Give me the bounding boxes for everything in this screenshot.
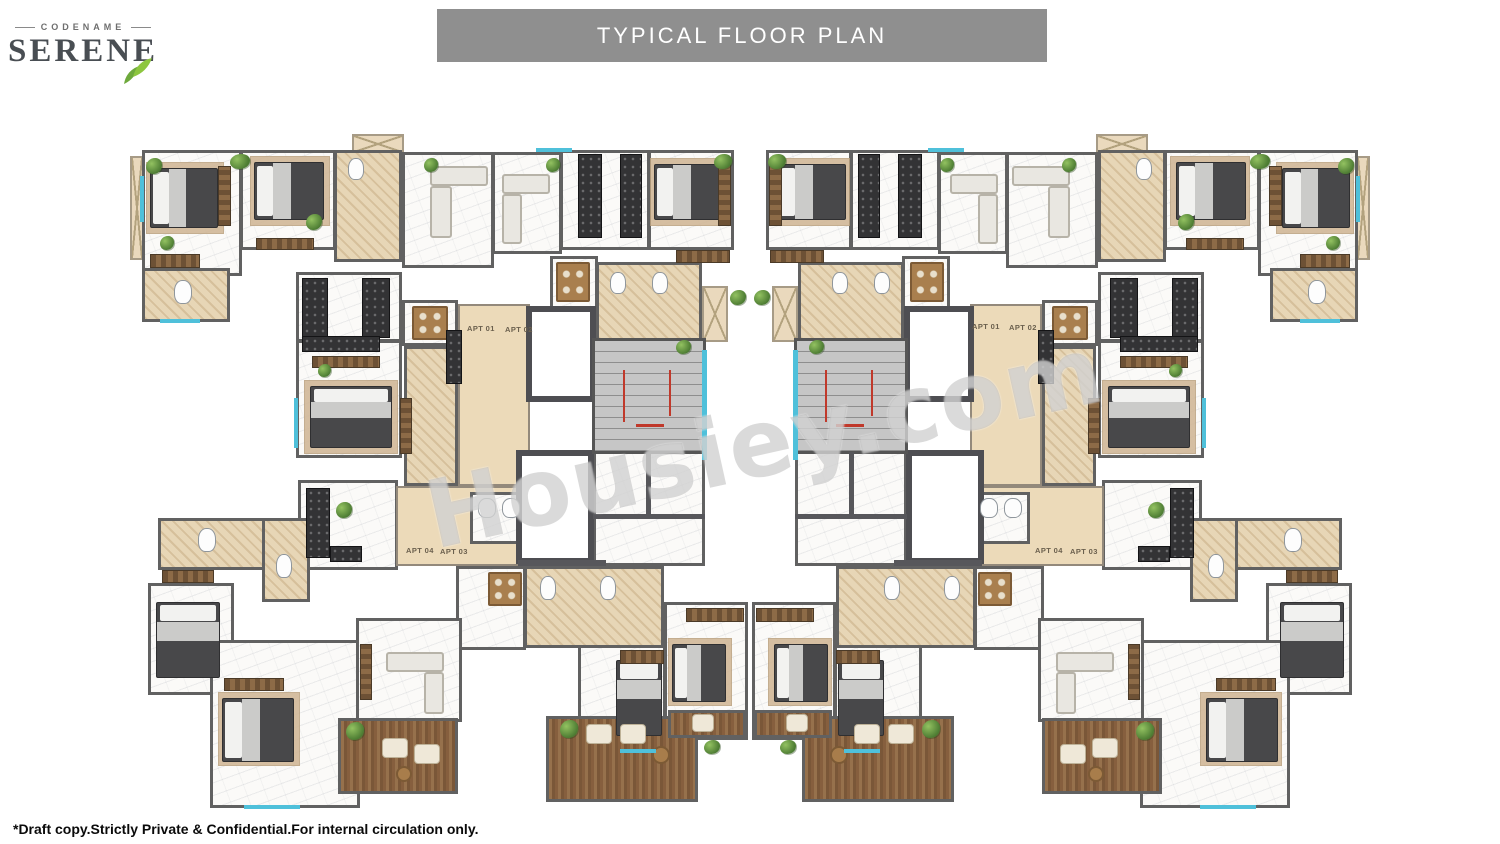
- window-strip: [620, 749, 656, 753]
- stair-rail: [636, 424, 664, 427]
- wardrobe: [836, 650, 880, 664]
- apartment-label: APT 02: [1009, 323, 1037, 332]
- window-strip: [793, 350, 798, 460]
- bath-fixture: [1308, 280, 1326, 304]
- wardrobe: [360, 644, 372, 700]
- elevator-shaft: [516, 450, 594, 564]
- staircase: [592, 338, 706, 454]
- bath-fixture: [874, 272, 890, 294]
- staircase: [794, 338, 908, 454]
- elevator-shaft: [526, 306, 596, 402]
- bath-fixture: [652, 272, 668, 294]
- bath-fixture: [1136, 158, 1152, 180]
- bath-fixture: [980, 498, 998, 518]
- bath-fixture: [1004, 498, 1022, 518]
- outdoor-chair: [888, 724, 914, 744]
- bath-fixture: [174, 280, 192, 304]
- wardrobe: [162, 570, 214, 583]
- plant: [780, 740, 796, 754]
- bath-fixture: [198, 528, 216, 552]
- stair-rail: [836, 424, 864, 427]
- window-strip: [140, 176, 144, 222]
- kitchen-counter: [1170, 488, 1194, 558]
- outdoor-chair: [1060, 744, 1086, 764]
- dining-table: [1052, 306, 1088, 340]
- bath-fixture: [540, 576, 556, 600]
- outdoor-chair: [620, 724, 646, 744]
- elevator-shaft: [904, 306, 974, 402]
- sofa: [430, 166, 488, 186]
- bed: [150, 168, 218, 228]
- wardrobe: [256, 238, 314, 250]
- kitchen-counter: [1120, 336, 1198, 352]
- dining-table: [556, 262, 590, 302]
- dining-table: [412, 306, 448, 340]
- bed: [776, 164, 846, 220]
- wardrobe: [1300, 254, 1350, 268]
- apartment-label: APT 04: [1035, 546, 1063, 555]
- apartment-label: APT 03: [440, 547, 468, 556]
- bath-fixture: [1208, 554, 1224, 578]
- round-table: [1088, 766, 1104, 782]
- bath-fixture: [276, 554, 292, 578]
- plant: [754, 290, 770, 305]
- bath-fixture: [832, 272, 848, 294]
- window-strip: [244, 805, 300, 809]
- service-balcony: [772, 286, 798, 342]
- plant: [730, 290, 746, 305]
- bath-fixture: [600, 576, 616, 600]
- kitchen-counter: [362, 278, 390, 338]
- bath-fixture: [944, 576, 960, 600]
- sofa: [430, 186, 452, 238]
- sofa: [502, 194, 522, 244]
- window-strip: [160, 319, 200, 323]
- bed: [654, 164, 724, 220]
- bed: [222, 698, 294, 762]
- wardrobe: [676, 250, 730, 263]
- dining-table: [978, 572, 1012, 606]
- window-strip: [928, 148, 964, 152]
- bath-fixture: [1284, 528, 1302, 552]
- wardrobe: [224, 678, 284, 691]
- dining-table: [488, 572, 522, 606]
- wall-segment: [518, 560, 606, 566]
- outdoor-chair: [382, 738, 408, 758]
- bed: [310, 386, 392, 448]
- apartment-label: APT 03: [1070, 547, 1098, 556]
- kitchen-counter: [858, 154, 880, 238]
- kitchen-counter: [306, 488, 330, 558]
- window-strip: [1300, 319, 1340, 323]
- wardrobe: [686, 608, 744, 622]
- bed: [156, 602, 220, 678]
- service-balcony: [702, 286, 728, 342]
- kitchen-counter: [1038, 330, 1054, 384]
- wardrobe: [756, 608, 814, 622]
- sofa: [1048, 186, 1070, 238]
- sofa: [1056, 652, 1114, 672]
- bathroom-floor: [334, 150, 402, 262]
- wardrobe: [1269, 166, 1282, 226]
- kitchen-counter: [330, 546, 362, 562]
- window-strip: [1202, 398, 1206, 448]
- wardrobe: [218, 166, 231, 226]
- bed: [1206, 698, 1278, 762]
- wardrobe: [620, 650, 664, 664]
- wardrobe: [718, 164, 731, 226]
- wardrobe: [400, 398, 412, 454]
- sofa: [1012, 166, 1070, 186]
- bed: [1280, 602, 1344, 678]
- bed: [1282, 168, 1350, 228]
- window-strip: [536, 148, 572, 152]
- outdoor-chair: [414, 744, 440, 764]
- sofa: [386, 652, 444, 672]
- dining-table: [910, 262, 944, 302]
- wardrobe: [1128, 644, 1140, 700]
- wall-segment: [894, 560, 982, 566]
- kitchen-counter: [1110, 278, 1138, 338]
- bed: [1176, 162, 1246, 220]
- wardrobe: [770, 250, 824, 263]
- bath-fixture: [610, 272, 626, 294]
- bath-fixture: [478, 498, 496, 518]
- window-strip: [702, 350, 707, 460]
- disclaimer-note: *Draft copy.Strictly Private & Confident…: [13, 821, 478, 837]
- round-table: [396, 766, 412, 782]
- bath-fixture: [348, 158, 364, 180]
- apartment-label: APT 04: [406, 546, 434, 555]
- window-strip: [844, 749, 880, 753]
- apartment-label: APT 01: [467, 324, 495, 333]
- kitchen-counter: [1172, 278, 1198, 338]
- outdoor-chair: [1092, 738, 1118, 758]
- bath-fixture: [884, 576, 900, 600]
- sofa: [1056, 672, 1076, 714]
- window-strip: [1200, 805, 1256, 809]
- floor-plan-drawing: APT 01APT 02APT 04APT 03APT 01APT 02APT …: [0, 0, 1500, 844]
- kitchen-counter: [302, 278, 328, 338]
- bathroom-floor: [1098, 150, 1166, 262]
- kitchen-counter: [898, 154, 922, 238]
- plant: [704, 740, 720, 754]
- window-strip: [294, 398, 298, 448]
- bath-fixture: [502, 498, 520, 518]
- sofa: [950, 174, 998, 194]
- wardrobe: [150, 254, 200, 268]
- outdoor-chair: [692, 714, 714, 732]
- kitchen-counter: [446, 330, 462, 384]
- apartment-label: APT 02: [505, 325, 533, 334]
- bed: [672, 644, 726, 702]
- sofa: [424, 672, 444, 714]
- bathroom-floor: [798, 262, 904, 342]
- wardrobe: [769, 164, 782, 226]
- bed: [1108, 386, 1190, 448]
- kitchen-counter: [302, 336, 380, 352]
- wardrobe: [1216, 678, 1276, 691]
- wall-segment: [646, 452, 651, 516]
- wardrobe: [1186, 238, 1244, 250]
- apartment-label: APT 01: [972, 322, 1000, 331]
- bed: [254, 162, 324, 220]
- sofa: [978, 194, 998, 244]
- wall-segment: [849, 452, 854, 516]
- wardrobe: [1286, 570, 1338, 583]
- wardrobe: [1088, 398, 1100, 454]
- kitchen-counter: [578, 154, 602, 238]
- floor-plan-page: { "logo": { "codename": "CODENAME", "nam…: [0, 0, 1500, 844]
- bed: [774, 644, 828, 702]
- elevator-shaft: [906, 450, 984, 564]
- window-strip: [1356, 176, 1360, 222]
- outdoor-chair: [586, 724, 612, 744]
- kitchen-counter: [620, 154, 642, 238]
- outdoor-chair: [854, 724, 880, 744]
- outdoor-chair: [786, 714, 808, 732]
- sofa: [502, 174, 550, 194]
- kitchen-counter: [1138, 546, 1170, 562]
